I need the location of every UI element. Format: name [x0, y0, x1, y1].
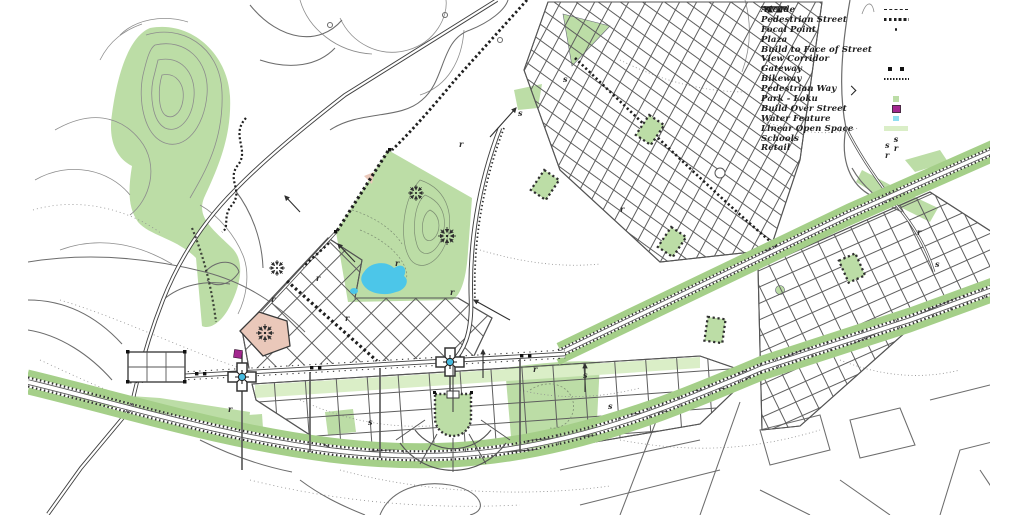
hillside-park [111, 27, 240, 327]
school-label: s [563, 74, 568, 84]
legend-item-park-loku: Park - Loku [761, 94, 911, 104]
legend-label: Gateway [761, 64, 802, 74]
retail-label: r [228, 404, 232, 414]
schools-symbol: s [894, 134, 899, 144]
retail-label: r [450, 287, 454, 297]
build-over-street-symbol-icon [893, 106, 900, 113]
legend-label: Linear Open Space [761, 124, 854, 134]
legend-item-pedestrian-street: Pedestrian Street [761, 15, 911, 25]
pedestrian-street-symbol-icon [884, 18, 909, 21]
legend-item-schools: Schools s [761, 134, 911, 144]
retail-label: r [395, 258, 399, 268]
legend-label: Retail [761, 143, 790, 153]
legend-label: Plaza [761, 35, 787, 45]
retail-symbol: r [894, 143, 898, 153]
legend-item-pedestrian-way: Pedestrian Way [761, 84, 911, 94]
school-label: s [935, 259, 940, 269]
legend-item-linear-open-space: Linear Open Space [761, 124, 911, 134]
legend-label: View Corridor [761, 54, 829, 64]
retail-label: r [271, 294, 275, 304]
focal-star [235, 370, 249, 384]
legend-label: Schools [761, 134, 799, 144]
legend-label: Bikeway [761, 74, 802, 84]
retail-label: r [316, 273, 320, 283]
legend-item-plaza: Plaza [761, 35, 911, 45]
build-over-street-markers [233, 349, 242, 358]
retail-label: r [345, 313, 349, 323]
legend-item-gateway: Gateway [761, 64, 911, 74]
legend-item-build-over-street: Build Over Street [761, 104, 911, 114]
legend-item-water-feature: Water Feature [761, 114, 911, 124]
park-loku-symbol-icon [893, 96, 899, 102]
arcade-symbol-icon [884, 9, 908, 10]
focal-point-symbol-icon [895, 28, 898, 31]
legend-label: Pedestrian Street [761, 15, 847, 25]
retail-label: r [533, 364, 537, 374]
lake [361, 263, 407, 294]
legend-item-focal-point: Focal Point [761, 25, 911, 35]
school-label: s [583, 370, 588, 380]
retail-label: r [459, 139, 463, 149]
school-label: s [518, 108, 523, 118]
legend-label: Park - Loku [761, 94, 818, 104]
school-label: s [608, 401, 613, 411]
legend: Arcade Pedestrian Street Focal Point Pla… [761, 5, 911, 153]
legend-item-view-corridor: View Corridor [761, 54, 911, 64]
linear-open-space-symbol-icon [884, 126, 908, 131]
legend-label: Focal Point [761, 25, 816, 35]
view-corridor-symbol-icon [761, 5, 788, 13]
legend-item-build-to-face: Build to Face of Street [761, 45, 911, 55]
legend-label: Build Over Street [761, 104, 847, 114]
retail-label: r [917, 227, 921, 237]
west-compound [126, 350, 187, 384]
legend-label: Water Feature [761, 114, 831, 124]
legend-item-bikeway: Bikeway [761, 74, 911, 84]
retail-label: r [620, 204, 624, 214]
water-feature-symbol-icon [893, 116, 899, 122]
legend-item-retail: Retail r [761, 143, 911, 153]
legend-label: Pedestrian Way [761, 84, 836, 94]
urban-plan-map: Arcade Pedestrian Street Focal Point Pla… [0, 0, 1024, 515]
focal-star [443, 355, 457, 369]
school-label: s [368, 417, 373, 427]
gateway-symbol-icon [888, 67, 904, 71]
bikeway-symbol-icon [884, 78, 909, 80]
legend-label: Build to Face of Street [761, 45, 872, 55]
